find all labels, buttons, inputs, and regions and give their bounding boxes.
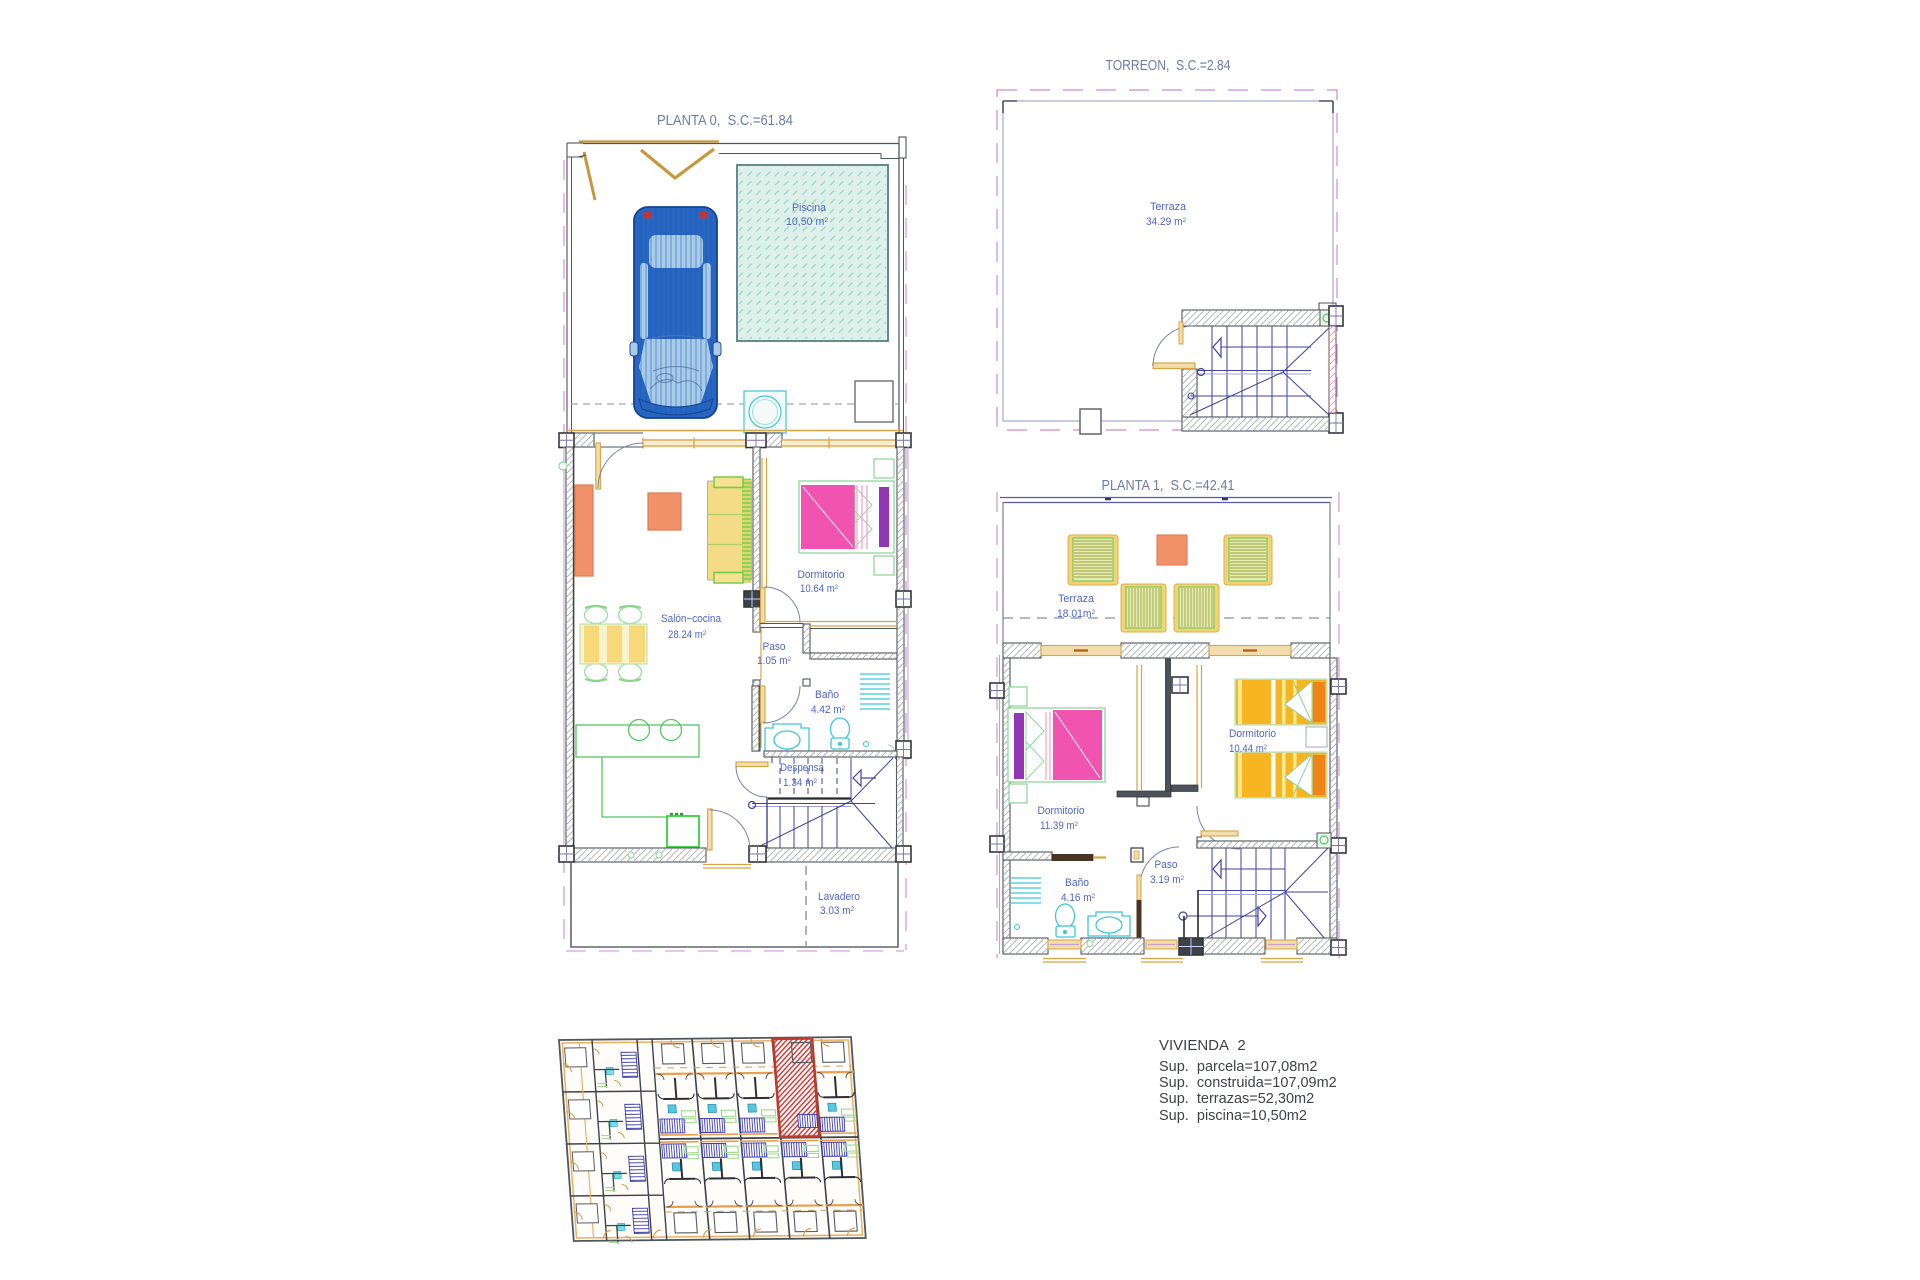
svg-text:Sup. terrazas=52,30m2: Sup. terrazas=52,30m2 [1159,1091,1314,1107]
svg-text:Paso: Paso [763,641,786,653]
svg-text:Piscina: Piscina [792,202,827,214]
svg-text:4.16 m2: 4.16 m2 [1061,892,1095,904]
svg-text:Terraza: Terraza [1058,593,1095,605]
svg-text:3.19 m2: 3.19 m2 [1150,874,1184,886]
svg-text:Dormitorio: Dormitorio [798,569,845,581]
svg-text:11.39 m2: 11.39 m2 [1040,820,1078,832]
svg-text:1.05 m2: 1.05 m2 [757,655,791,667]
svg-text:10.64 m2: 10.64 m2 [800,583,838,595]
svg-text:10,50 m2: 10,50 m2 [786,216,828,228]
svg-text:1.34 m2: 1.34 m2 [783,777,817,789]
svg-text:Lavadero: Lavadero [818,891,860,903]
svg-text:Sup. parcela=107,08m2: Sup. parcela=107,08m2 [1159,1059,1317,1075]
svg-text:Baño: Baño [815,689,839,701]
svg-text:3.03 m2: 3.03 m2 [820,905,854,917]
svg-text:34.29 m2: 34.29 m2 [1146,216,1186,228]
svg-text:Dormitorio: Dormitorio [1038,805,1085,817]
svg-text:Salón−cocina: Salón−cocina [661,613,722,625]
svg-text:PLANTA 1, S.C.=42.41: PLANTA 1, S.C.=42.41 [1102,478,1235,494]
svg-text:10.44 m2: 10.44 m2 [1229,743,1267,755]
svg-text:18.01m2: 18.01m2 [1057,608,1095,620]
svg-text:Sup. piscina=10,50m2: Sup. piscina=10,50m2 [1159,1108,1307,1124]
svg-text:PLANTA 0, S.C.=61.84: PLANTA 0, S.C.=61.84 [657,113,793,129]
svg-text:Sup. construida=107,09m2: Sup. construida=107,09m2 [1159,1075,1337,1091]
svg-text:4.42 m2: 4.42 m2 [811,704,845,716]
svg-text:Terraza: Terraza [1150,201,1187,213]
svg-text:Despensa: Despensa [780,762,825,774]
svg-text:28.24 m2: 28.24 m2 [668,629,706,641]
svg-text:TORREON, S.C.=2.84: TORREON, S.C.=2.84 [1106,58,1231,74]
svg-text:Paso: Paso [1155,859,1178,871]
svg-text:VIVIENDA 2: VIVIENDA 2 [1159,1037,1246,1054]
svg-text:Dormitorio: Dormitorio [1229,728,1276,740]
svg-text:Baño: Baño [1065,877,1089,889]
